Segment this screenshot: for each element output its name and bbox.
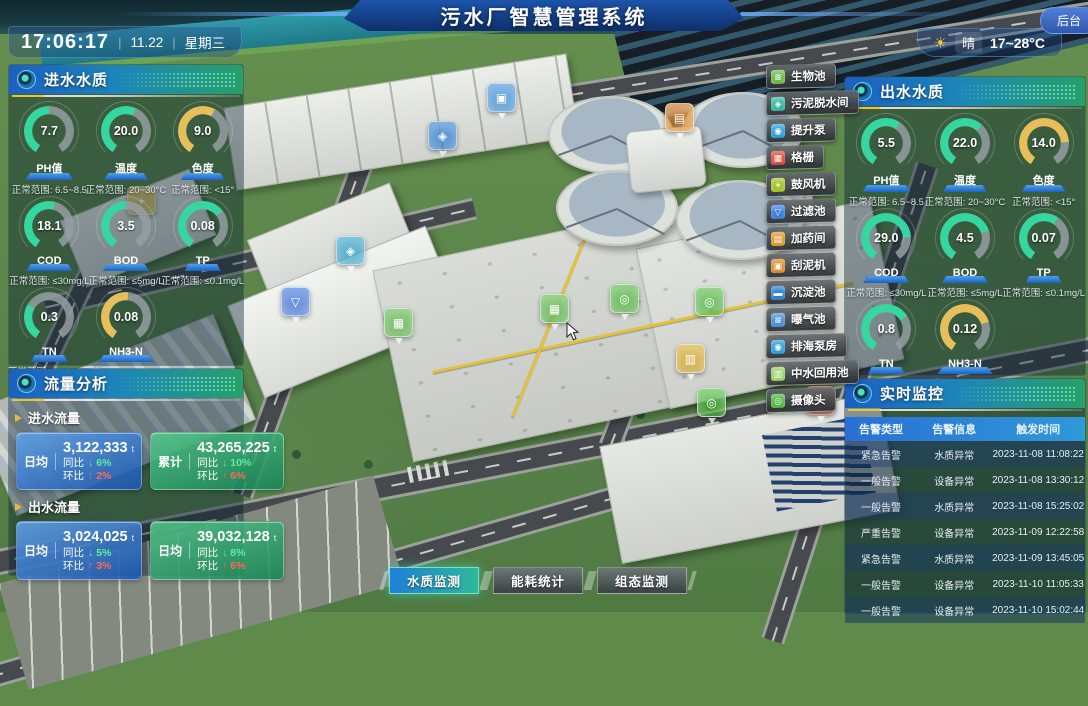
quality-gauge: 0.08 NH3-N 正常范围: ≤0.15mg/L	[88, 292, 164, 378]
flow-card-label: 日均	[24, 453, 56, 470]
panel-bullet-icon	[17, 70, 36, 89]
gauge-ring: 0.08	[178, 201, 228, 251]
yoy-value: 6%	[88, 457, 111, 470]
gauge-value: 18.1	[24, 201, 74, 251]
facility-button-sea-discharge-pump[interactable]: ◉ 排海泵房	[766, 333, 847, 359]
flow-value: 3,122,333 t	[63, 439, 134, 457]
gauge-value: 4.5	[940, 213, 990, 263]
flow-unit: t	[132, 533, 135, 543]
building	[224, 53, 580, 190]
flow-card-values: 43,265,225 t 同比10% 环比6%	[197, 439, 276, 483]
gauge-label: NH3-N	[103, 346, 149, 358]
quality-gauge: 29.0 COD 正常范围: ≤30mg/L	[848, 213, 924, 299]
panel-header: 出水水质	[845, 77, 1085, 106]
facility-button-lift-pump[interactable]: ◉ 提升泵	[766, 117, 836, 143]
tab-scada-monitor[interactable]: 组态监测	[597, 567, 687, 594]
col-header-type: 告警类型	[845, 421, 917, 437]
quality-gauge: 3.5 BOD 正常范围: ≤5mg/L	[88, 201, 164, 287]
scene-filter-icon[interactable]: ▽	[281, 287, 310, 316]
arrow-right-icon	[15, 414, 22, 422]
clock-weekday: 星期三	[185, 32, 226, 52]
gauge-label: BOD	[108, 255, 144, 267]
gauge-ring: 7.7	[24, 106, 74, 156]
gauge-label: 温度	[109, 160, 143, 176]
gauge-value: 0.08	[101, 292, 151, 342]
quality-gauge: 7.7 PH值 正常范围: 6.5~8.5	[11, 106, 87, 196]
scene-camera-2-icon[interactable]: ◎	[695, 287, 724, 316]
alarm-type: 紧急告警	[845, 447, 917, 462]
lift-pump-icon: ◉	[771, 124, 785, 138]
sea-discharge-pump-icon: ◉	[771, 340, 785, 354]
gauge-normal-range: 正常范围: <15°	[171, 182, 234, 196]
mud-scraper-icon: ▣	[771, 259, 785, 273]
gauge-normal-range: 正常范围: <15°	[1012, 194, 1075, 208]
gauge-normal-range: 正常范围: ≤5mg/L	[89, 273, 164, 287]
facility-button-bar-screen[interactable]: ▦ 格栅	[766, 145, 824, 171]
inlet-quality-panel: 进水水质 7.7 PH值 正常范围: 6.5~8.5 20.0 温度 正常范围:…	[8, 64, 244, 366]
flow-card-values: 3,122,333 t 同比6% 环比2%	[63, 439, 134, 483]
clock-time: 17:06:17	[21, 31, 109, 54]
gauge-label: BOD	[947, 267, 983, 279]
aeration-pool-icon: ≋	[771, 313, 785, 327]
flow-analysis-panel: 流量分析 进水流量 日均 3,122,333 t 同比6% 环比2% 累计 43…	[8, 368, 244, 576]
flow-sections: 进水流量 日均 3,122,333 t 同比6% 环比2% 累计 43,265,…	[9, 408, 243, 580]
panel-title: 实时监控	[880, 383, 944, 404]
gauge-normal-range: 正常范围: 20~30°C	[925, 194, 1006, 208]
flow-section-label: 进水流量	[28, 408, 80, 427]
mom-row: 环比3%	[63, 560, 134, 573]
flow-stat-card: 累计 43,265,225 t 同比10% 环比6%	[150, 432, 284, 490]
facility-button-sludge-dewatering[interactable]: ◈ 污泥脱水间	[766, 90, 859, 116]
alarm-info: 水质异常	[917, 447, 991, 462]
gauge-label: COD	[868, 267, 904, 279]
alarm-table-body: 紧急告警 水质异常 2023-11-08 11:08:22 一般告警 设备异常 …	[845, 441, 1085, 623]
gauge-ring: 14.0	[1019, 118, 1069, 168]
gauge-value: 3.5	[101, 201, 151, 251]
gauge-value: 9.0	[178, 106, 228, 156]
gauge-normal-range: 正常范围: ≤5mg/L	[928, 285, 1003, 299]
quality-gauge: 0.08 TP 正常范围: ≤0.1mg/L	[165, 201, 241, 287]
dot-pattern	[952, 386, 1077, 402]
gauge-label: TP	[1031, 267, 1057, 279]
dosing-room-icon: ▤	[771, 232, 785, 246]
gauge-label: TP	[190, 255, 216, 267]
header-rule	[848, 409, 1082, 411]
gauge-label: NH3-N	[942, 358, 988, 370]
mom-label: 环比	[197, 470, 218, 483]
banner-wing-right	[740, 12, 970, 16]
flow-card-values: 39,032,128 t 同比8% 环比6%	[197, 528, 276, 572]
mom-value: 6%	[222, 560, 245, 573]
gauge-ring: 4.5	[940, 213, 990, 263]
yoy-value: 5%	[88, 547, 111, 560]
outlet-gauge-grid: 5.5 PH值 正常范围: 6.5~8.5 22.0 温度 正常范围: 20~3…	[845, 109, 1085, 394]
mom-row: 环比2%	[63, 470, 134, 483]
alarm-type: 严重告警	[845, 525, 917, 540]
quality-gauge: 5.5 PH值 正常范围: 6.5~8.5	[848, 118, 924, 208]
banner-wing-left	[118, 12, 348, 16]
flow-value: 39,032,128 t	[197, 528, 276, 546]
scene-bio-pool-2-icon[interactable]: ▦	[540, 294, 569, 323]
gauge-normal-range: 正常范围: ≤30mg/L	[9, 273, 89, 287]
alarm-time: 2023-11-10 15:02:44	[991, 605, 1085, 616]
panel-title: 进水水质	[44, 69, 108, 90]
dot-pattern	[952, 84, 1077, 100]
facility-button-mud-scraper[interactable]: ▣ 刮泥机	[766, 252, 836, 278]
flow-value: 43,265,225 t	[197, 439, 276, 457]
gauge-ring: 0.3	[24, 292, 74, 342]
mom-value: 6%	[222, 470, 245, 483]
bottom-tab-bar: 水质监测能耗统计组态监测	[389, 567, 687, 594]
gauge-value: 29.0	[861, 213, 911, 263]
yoy-label: 同比	[63, 457, 84, 470]
yoy-row: 同比8%	[197, 547, 276, 560]
flow-card-label: 累计	[158, 453, 190, 470]
tab-water-quality[interactable]: 水质监测	[389, 567, 479, 594]
gauge-value: 5.5	[861, 118, 911, 168]
backend-button[interactable]: 后台	[1040, 7, 1088, 34]
gauge-ring: 0.12	[940, 304, 990, 354]
gauge-normal-range: 正常范围: ≤0.1mg/L	[161, 273, 244, 287]
mom-value: 2%	[88, 470, 111, 483]
mom-label: 环比	[197, 560, 218, 573]
divider: |	[118, 35, 121, 50]
mom-value: 3%	[88, 560, 111, 573]
alarm-type: 一般告警	[845, 499, 917, 514]
gauge-ring: 0.8	[861, 304, 911, 354]
header-rule	[12, 399, 240, 401]
mouse-cursor	[566, 322, 580, 347]
gauge-value: 22.0	[940, 118, 990, 168]
weather-condition: 晴	[955, 32, 982, 53]
quality-gauge: 14.0 色度 正常范围: <15°	[1006, 118, 1082, 208]
flow-cards-row: 日均 3,024,025 t 同比5% 环比3% 日均 39,032,128 t…	[9, 521, 243, 579]
flow-value: 3,024,025 t	[63, 528, 134, 546]
quality-gauge: 0.3 TN 正常范围: ≤1.0mg/L	[11, 292, 87, 378]
gauge-ring: 5.5	[861, 118, 911, 168]
bio-pool-icon: ≋	[771, 70, 785, 84]
quality-gauge: 18.1 COD 正常范围: ≤30mg/L	[11, 201, 87, 287]
gauge-ring: 9.0	[178, 106, 228, 156]
divider: |	[172, 35, 175, 50]
tab-energy-stats[interactable]: 能耗统计	[493, 567, 583, 594]
flow-stat-card: 日均 39,032,128 t 同比8% 环比6%	[150, 521, 284, 579]
mom-row: 环比6%	[197, 470, 276, 483]
gauge-value: 0.8	[861, 304, 911, 354]
gauge-normal-range: 正常范围: 20~30°C	[86, 182, 167, 196]
gauge-normal-range: 正常范围: ≤0.1mg/L	[1002, 285, 1085, 299]
alarm-info: 设备异常	[917, 525, 991, 540]
gauge-ring: 0.08	[101, 292, 151, 342]
gauge-value: 20.0	[101, 106, 151, 156]
yoy-label: 同比	[63, 547, 84, 560]
facility-button-sedimentation-pool[interactable]: ▬ 沉淀池	[766, 279, 836, 305]
yoy-value: 8%	[222, 547, 245, 560]
alarm-info: 水质异常	[917, 499, 991, 514]
gauge-label: PH值	[30, 160, 68, 176]
mom-row: 环比6%	[197, 560, 276, 573]
flow-unit: t	[274, 444, 277, 454]
facility-menu: ≋ 生物池 ◈ 污泥脱水间 ◉ 提升泵 ▦ 格栅 + 鼓风机 ▽ 过滤池 ▤ 加…	[766, 63, 859, 413]
quality-gauge: 20.0 温度 正常范围: 20~30°C	[88, 106, 164, 196]
flow-section-label: 出水流量	[28, 497, 80, 516]
quality-gauge: 22.0 温度 正常范围: 20~30°C	[927, 118, 1003, 208]
scene-bio-pool-1-icon[interactable]: ▦	[384, 308, 413, 337]
alarm-row: 一般告警 设备异常 2023-11-10 11:05:33	[845, 571, 1085, 597]
gauge-value: 0.07	[1019, 213, 1069, 263]
facility-button-dosing-room[interactable]: ▤ 加药间	[766, 225, 836, 251]
filter-pool-icon: ▽	[771, 205, 785, 219]
app-title-banner: 污水厂智慧管理系统	[344, 0, 744, 31]
facility-button-blower[interactable]: + 鼓风机	[766, 171, 836, 197]
dot-pattern	[116, 376, 235, 392]
gauge-label: COD	[31, 255, 67, 267]
col-header-info: 告警信息	[917, 421, 991, 437]
alarm-time: 2023-11-09 13:45:05	[991, 553, 1085, 564]
panel-header: 进水水质	[9, 65, 243, 94]
facility-button-bio-pool[interactable]: ≋ 生物池	[766, 63, 836, 89]
scene-sedimentation-icon[interactable]: ▣	[487, 83, 516, 112]
flow-section: 出水流量 日均 3,024,025 t 同比5% 环比3% 日均 39,032,…	[9, 497, 243, 579]
alarm-info: 设备异常	[917, 603, 991, 618]
quality-gauge: 9.0 色度 正常范围: <15°	[165, 106, 241, 196]
yoy-row: 同比6%	[63, 457, 134, 470]
facility-button-water-reuse-pool[interactable]: ▥ 中水回用池	[766, 360, 859, 386]
yoy-row: 同比5%	[63, 547, 134, 560]
gauge-label: TN	[873, 358, 900, 370]
clock-widget: 17:06:17 | 11.22 | 星期三	[8, 26, 242, 58]
facility-button-aeration-pool[interactable]: ≋ 曝气池	[766, 306, 836, 332]
alarm-row: 严重告警 设备异常 2023-11-09 12:22:58	[845, 519, 1085, 545]
flow-card-label: 日均	[158, 542, 190, 559]
blower-icon: +	[771, 178, 785, 192]
gauge-ring: 20.0	[101, 106, 151, 156]
flow-section: 进水流量 日均 3,122,333 t 同比6% 环比2% 累计 43,265,…	[9, 408, 243, 490]
gauge-label: 色度	[1027, 172, 1061, 188]
page-title: 污水厂智慧管理系统	[441, 1, 648, 30]
realtime-monitor-panel: 实时监控 告警类型 告警信息 触发时间 紧急告警 水质异常 2023-11-08…	[844, 378, 1086, 614]
alarm-time: 2023-11-08 13:30:12	[991, 475, 1085, 486]
sludge-dewatering-icon: ◈	[771, 97, 785, 111]
bar-screen-icon: ▦	[771, 151, 785, 165]
flow-section-title: 出水流量	[15, 497, 237, 516]
scene-equipment-icon[interactable]: ◈	[336, 236, 365, 265]
flow-card-values: 3,024,025 t 同比5% 环比3%	[63, 528, 134, 572]
alarm-table-header: 告警类型 告警信息 触发时间	[845, 417, 1085, 441]
sedimentation-pool-icon: ▬	[771, 286, 785, 300]
gauge-value: 0.08	[178, 201, 228, 251]
gauge-value: 0.12	[940, 304, 990, 354]
yoy-label: 同比	[197, 457, 218, 470]
yoy-row: 同比10%	[197, 457, 276, 470]
alarm-type: 一般告警	[845, 603, 917, 618]
scene-camera-3-icon[interactable]: ◎	[697, 388, 726, 417]
flow-unit: t	[132, 444, 135, 454]
central-hub-building	[625, 124, 707, 194]
flow-unit: t	[274, 533, 277, 543]
gauge-value: 0.3	[24, 292, 74, 342]
dot-pattern	[116, 72, 235, 88]
alarm-info: 设备异常	[917, 473, 991, 488]
alarm-type: 一般告警	[845, 473, 917, 488]
gauge-ring: 0.07	[1019, 213, 1069, 263]
alarm-row: 紧急告警 水质异常 2023-11-08 11:08:22	[845, 441, 1085, 467]
arrow-right-icon	[15, 503, 22, 511]
alarm-time: 2023-11-10 11:05:33	[991, 579, 1085, 590]
alarm-time: 2023-11-08 15:25:02	[991, 501, 1085, 512]
alarm-row: 一般告警 设备异常 2023-11-10 15:02:44	[845, 597, 1085, 623]
yoy-value: 10%	[222, 457, 251, 470]
flow-section-title: 进水流量	[15, 408, 237, 427]
panel-header: 实时监控	[845, 379, 1085, 408]
panel-title: 出水水质	[880, 81, 944, 102]
gauge-label: 色度	[186, 160, 220, 176]
facility-button-camera[interactable]: ◎ 摄像头	[766, 387, 836, 413]
gauge-ring: 18.1	[24, 201, 74, 251]
sun-icon: ☀	[934, 34, 947, 52]
yoy-label: 同比	[197, 547, 218, 560]
water-reuse-pool-icon: ▥	[771, 367, 785, 381]
quality-gauge: 4.5 BOD 正常范围: ≤5mg/L	[927, 213, 1003, 299]
gauge-ring: 29.0	[861, 213, 911, 263]
alarm-type: 一般告警	[845, 577, 917, 592]
gauge-normal-range: 正常范围: 6.5~8.5	[12, 182, 87, 196]
gauge-value: 7.7	[24, 106, 74, 156]
gauge-ring: 22.0	[940, 118, 990, 168]
gauge-normal-range: 正常范围: 6.5~8.5	[849, 194, 924, 208]
weather-temp-range: 17~28°C	[990, 35, 1045, 51]
alarm-type: 紧急告警	[845, 551, 917, 566]
scene-pump-station-icon[interactable]: ◈	[428, 121, 457, 150]
col-header-time: 触发时间	[991, 421, 1085, 437]
gauge-label: PH值	[867, 172, 905, 188]
flow-card-label: 日均	[24, 542, 56, 559]
scene-camera-1-icon[interactable]: ◎	[610, 284, 639, 313]
inlet-gauge-grid: 7.7 PH值 正常范围: 6.5~8.5 20.0 温度 正常范围: 20~3…	[9, 97, 243, 382]
clock-date: 11.22	[130, 35, 163, 50]
alarm-row: 一般告警 水质异常 2023-11-08 15:25:02	[845, 493, 1085, 519]
flow-cards-row: 日均 3,122,333 t 同比6% 环比2% 累计 43,265,225 t…	[9, 432, 243, 490]
quality-gauge: 0.07 TP 正常范围: ≤0.1mg/L	[1006, 213, 1082, 299]
gauge-label: TN	[36, 346, 63, 358]
alarm-info: 设备异常	[917, 577, 991, 592]
panel-bullet-icon	[17, 374, 36, 393]
facility-button-filter-pool[interactable]: ▽ 过滤池	[766, 198, 836, 224]
flow-stat-card: 日均 3,122,333 t 同比6% 环比2%	[16, 432, 142, 490]
panel-header: 流量分析	[9, 369, 243, 398]
scene-dosing-icon[interactable]: ▤	[665, 103, 694, 132]
mom-label: 环比	[63, 560, 84, 573]
outlet-quality-panel: 出水水质 5.5 PH值 正常范围: 6.5~8.5 22.0 温度 正常范围:…	[844, 76, 1086, 376]
flow-stat-card: 日均 3,024,025 t 同比5% 环比3%	[16, 521, 142, 579]
alarm-time: 2023-11-09 12:22:58	[991, 527, 1085, 538]
alarm-info: 水质异常	[917, 551, 991, 566]
mom-label: 环比	[63, 470, 84, 483]
alarm-time: 2023-11-08 11:08:22	[991, 449, 1085, 460]
panel-title: 流量分析	[44, 373, 108, 394]
gauge-label: 温度	[948, 172, 982, 188]
weather-widget: ☀ 晴 17~28°C	[917, 28, 1063, 57]
gauge-value: 14.0	[1019, 118, 1069, 168]
alarm-row: 一般告警 设备异常 2023-11-08 13:30:12	[845, 467, 1085, 493]
alarm-row: 紧急告警 水质异常 2023-11-09 13:45:05	[845, 545, 1085, 571]
gauge-ring: 3.5	[101, 201, 151, 251]
scene-yellow-unit-icon[interactable]: ▥	[676, 344, 705, 373]
camera-icon: ◎	[771, 394, 785, 408]
